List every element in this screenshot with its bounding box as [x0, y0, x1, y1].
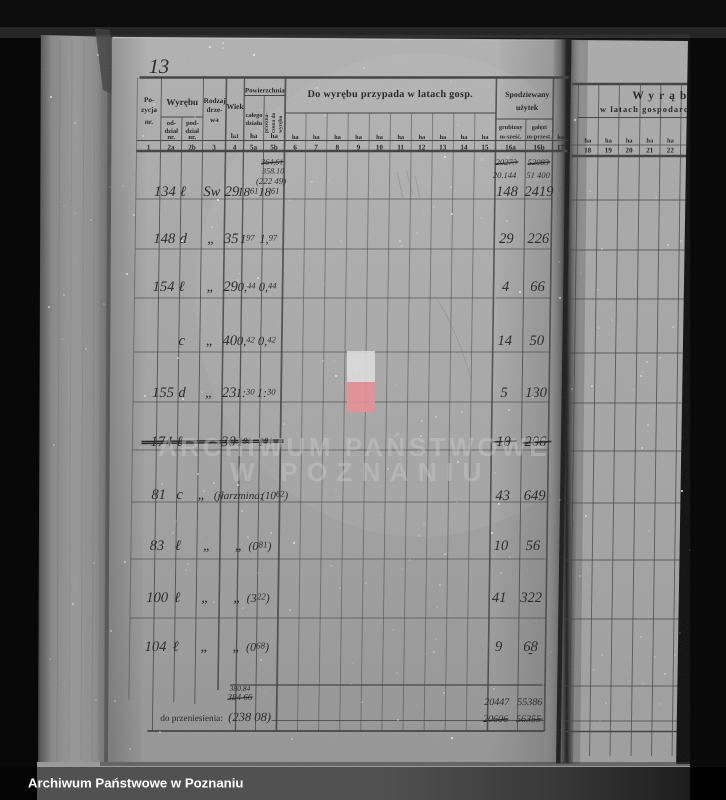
svg-text:Archiwum Państwowe w Poznaniu: Archiwum Państwowe w Poznaniu — [28, 776, 243, 791]
